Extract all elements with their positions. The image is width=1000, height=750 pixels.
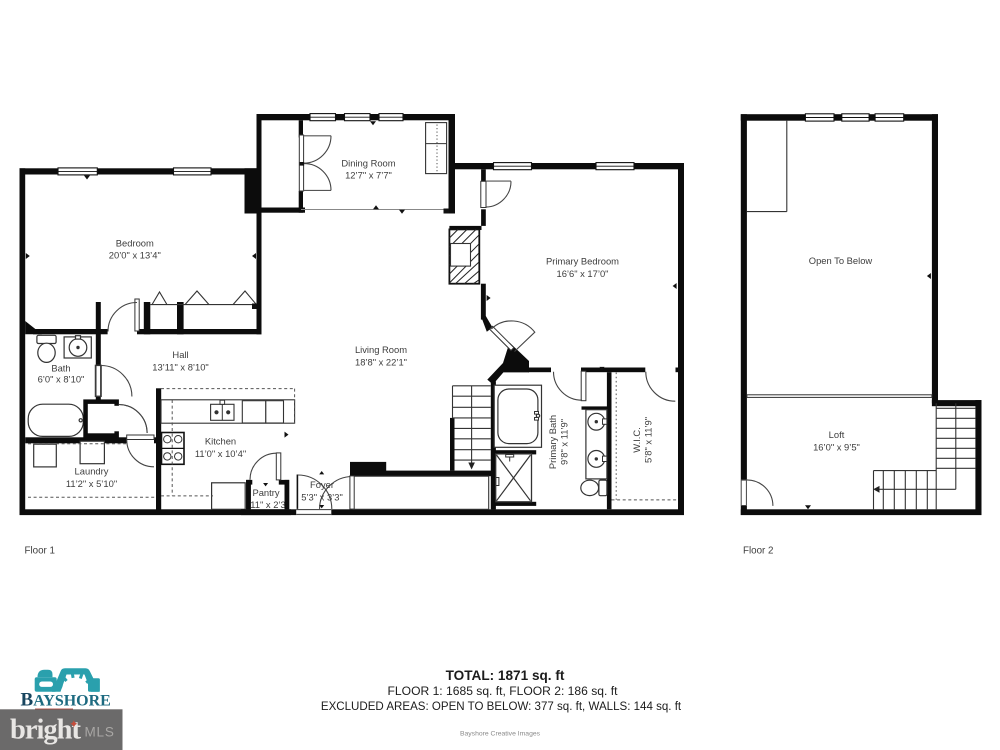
svg-text:TOTAL: 1871 sq. ft: TOTAL: 1871 sq. ft: [446, 668, 565, 683]
svg-text:EXCLUDED AREAS: OPEN TO BELOW:: EXCLUDED AREAS: OPEN TO BELOW: 377 sq. f…: [321, 701, 682, 713]
svg-text:5’8" x 11’9": 5’8" x 11’9": [643, 417, 654, 463]
svg-text:6’0" x 8’10": 6’0" x 8’10": [38, 374, 85, 385]
svg-text:Primary Bedroom: Primary Bedroom: [546, 256, 619, 267]
svg-text:FLOOR 1: 1685 sq. ft, FLOOR 2:: FLOOR 1: 1685 sq. ft, FLOOR 2: 186 sq. f…: [388, 684, 619, 698]
svg-text:Bayshore Creative Images: Bayshore Creative Images: [460, 731, 541, 738]
svg-text:16’0" x 9’5": 16’0" x 9’5": [813, 442, 860, 453]
svg-text:11’2" x 5’10": 11’2" x 5’10": [66, 478, 117, 489]
svg-text:Open To Below: Open To Below: [809, 255, 873, 266]
svg-text:Primary Bath: Primary Bath: [547, 415, 558, 469]
svg-text:Foyer: Foyer: [310, 479, 334, 490]
svg-text:13’11" x 8’10": 13’11" x 8’10": [152, 361, 209, 372]
svg-text:BAYSHORE: BAYSHORE: [21, 690, 111, 711]
svg-text:Floor 2: Floor 2: [743, 546, 774, 557]
svg-text:9’8" x 11’9": 9’8" x 11’9": [559, 419, 570, 465]
svg-text:W.I.C.: W.I.C.: [631, 427, 642, 453]
svg-text:Bath: Bath: [51, 362, 70, 373]
svg-text:Floor 1: Floor 1: [25, 546, 56, 557]
svg-text:18’8" x 22’1": 18’8" x 22’1": [355, 356, 407, 367]
svg-text:20’0" x 13’4": 20’0" x 13’4": [109, 250, 161, 261]
svg-text:Loft: Loft: [829, 429, 845, 440]
svg-text:16’6" x 17’0": 16’6" x 17’0": [556, 268, 608, 279]
svg-text:Dining Room: Dining Room: [341, 157, 395, 168]
svg-text:Living Room: Living Room: [355, 344, 407, 355]
svg-text:✦: ✦: [69, 719, 79, 731]
svg-text:Laundry: Laundry: [75, 466, 109, 477]
svg-text:Pantry: Pantry: [252, 487, 279, 498]
svg-text:Bedroom: Bedroom: [116, 237, 154, 248]
svg-text:12’7" x 7’7": 12’7" x 7’7": [345, 170, 392, 181]
svg-text:Hall: Hall: [172, 349, 188, 360]
svg-text:MLS: MLS: [85, 725, 115, 740]
svg-text:5’3" x 3’3": 5’3" x 3’3": [301, 491, 343, 502]
svg-text:Kitchen: Kitchen: [205, 436, 236, 447]
svg-text:11’0" x 10’4": 11’0" x 10’4": [195, 448, 246, 459]
